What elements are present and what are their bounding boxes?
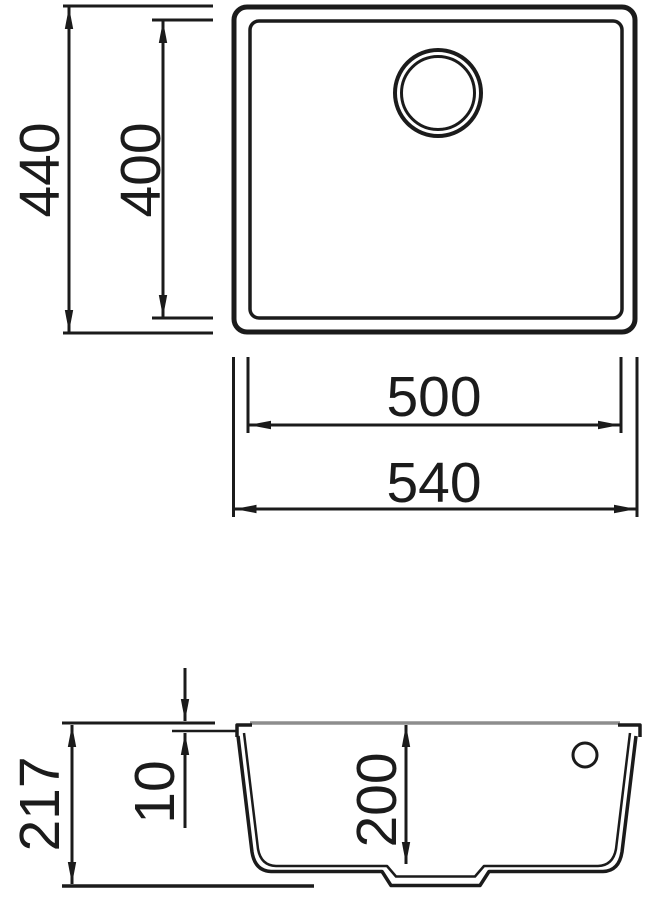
sink-technical-drawing: 440 400 500 540 (0, 0, 658, 910)
dim-rim-thickness-label: 10 (123, 760, 187, 823)
dim-outer-width-label: 540 (386, 451, 481, 515)
top-view: 440 400 500 540 (8, 6, 637, 517)
drain-hole-outer-circle (395, 50, 481, 136)
dim-rim-thickness: 10 (123, 668, 238, 828)
overflow-hole-circle (573, 743, 597, 767)
drain-hole-inner-circle (402, 57, 475, 130)
dim-total-height-label: 217 (8, 756, 72, 851)
dim-bowl-depth: 200 (345, 725, 409, 864)
dim-inner-height-label: 400 (109, 122, 173, 217)
section-view: 217 10 200 (8, 668, 640, 886)
sink-technical-drawing-page: 440 400 500 540 (0, 0, 658, 910)
dim-inner-width-label: 500 (386, 365, 481, 429)
sink-bowl-outline (250, 21, 622, 318)
dim-bowl-depth-label: 200 (345, 752, 409, 847)
dim-inner-height: 400 (109, 20, 213, 318)
dim-inner-width: 500 (248, 357, 621, 433)
bowl-outer-surface (238, 736, 636, 886)
dim-outer-height-label: 440 (8, 122, 72, 217)
